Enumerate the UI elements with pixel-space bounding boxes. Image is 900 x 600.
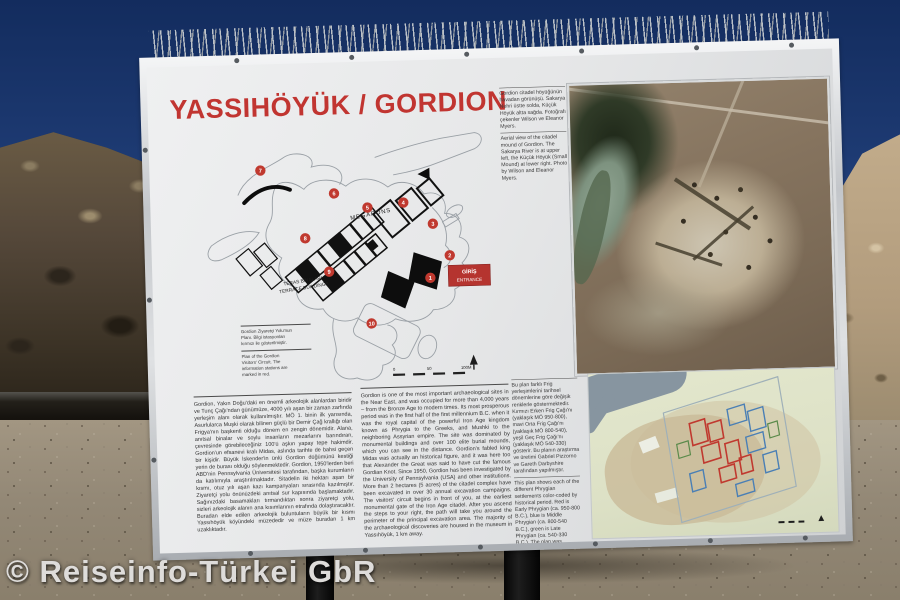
illus-scale-bar xyxy=(778,520,804,523)
aerial-caption-turkish: Gordion citadel höyüğünün havadan görünü… xyxy=(499,88,566,129)
aerial-caption-english: Aerial view of the citadel mound of Gord… xyxy=(500,134,567,182)
ancient-road xyxy=(244,187,290,203)
station-marker: 6 xyxy=(329,188,340,199)
north-arrow-icon: ▲ xyxy=(816,514,826,524)
map-caption: Gordion Ziyaretçi Yolu'nun Planı. Bilgi … xyxy=(241,324,312,377)
photo-watermark: © Reiseinfo-Türkei GbR xyxy=(6,554,376,590)
map-scale-bar: 0 50 100M xyxy=(393,365,472,375)
excavation-pits xyxy=(692,182,697,187)
station-markers: 7 6 5 4 3 8 2 9 1 10 xyxy=(255,160,457,332)
svg-text:1: 1 xyxy=(429,276,432,282)
aluminum-frame: YASSIHÖYÜK / GORDION xyxy=(139,38,853,560)
svg-text:7: 7 xyxy=(259,168,262,174)
sign-board: YASSIHÖYÜK / GORDION xyxy=(146,49,845,554)
phrygian-settlement-plan: ▲ xyxy=(587,367,840,540)
body-text-english: Gordion is one of the most important arc… xyxy=(361,389,513,540)
svg-text:kırmızı ile gösterilmiştir.: kırmızı ile gösterilmiştir. xyxy=(241,340,287,346)
frame-rivets-sides xyxy=(143,148,148,153)
body-text-turkish-column: Gordion, Yakın Doğu'daki en önemli arkeo… xyxy=(194,392,359,553)
body-text-english-column: Gordion is one of the most important arc… xyxy=(360,384,516,554)
svg-text:50: 50 xyxy=(427,366,432,371)
station-marker: 3 xyxy=(428,218,439,229)
terrace-buildings xyxy=(286,206,398,309)
station-marker: 8 xyxy=(300,233,311,244)
svg-text:marked in red.: marked in red. xyxy=(242,371,270,377)
body-text-turkish: Gordion, Yakın Doğu'daki en önemli arkeo… xyxy=(194,397,356,534)
entrance-text-tr: GİRİŞ xyxy=(462,268,477,275)
svg-text:10: 10 xyxy=(368,321,374,327)
aerial-photo-caption: Gordion citadel höyüğünün havadan görünü… xyxy=(499,86,572,282)
plan-caption-turkish: Bu plan farklı Frig yerleşimlerini tarih… xyxy=(511,380,580,474)
svg-text:8: 8 xyxy=(304,236,307,242)
svg-text:information stations are: information stations are xyxy=(242,365,288,371)
svg-text:100M: 100M xyxy=(461,365,472,370)
svg-text:5: 5 xyxy=(366,206,369,212)
svg-text:0: 0 xyxy=(393,367,396,372)
station-marker: 10 xyxy=(366,318,377,329)
plan-caption-english: This plan shows each of the different Ph… xyxy=(514,478,582,553)
visitors-circuit-map: MEGARONS TERAS BİNALARI TERRACE BUILDING… xyxy=(178,110,510,395)
station-marker: 2 xyxy=(444,250,455,261)
excavated-area xyxy=(582,269,734,357)
color-coded-citadel-plan xyxy=(650,372,824,527)
phrygian-plan-caption: Bu plan farklı Frig yerleşimlerini tarih… xyxy=(511,378,590,554)
frame-rivets-top xyxy=(234,58,239,63)
aerial-photo xyxy=(567,77,837,376)
svg-text:9: 9 xyxy=(328,270,331,276)
svg-text:6: 6 xyxy=(332,191,335,197)
information-sign: YASSIHÖYÜK / GORDION xyxy=(139,36,853,560)
entrance-text-en: ENTRANCE xyxy=(457,277,482,283)
svg-text:3: 3 xyxy=(431,222,434,228)
svg-text:2: 2 xyxy=(448,253,451,259)
entrance-label: GİRİŞ ENTRANCE xyxy=(448,264,491,286)
station-marker: 7 xyxy=(255,165,266,176)
